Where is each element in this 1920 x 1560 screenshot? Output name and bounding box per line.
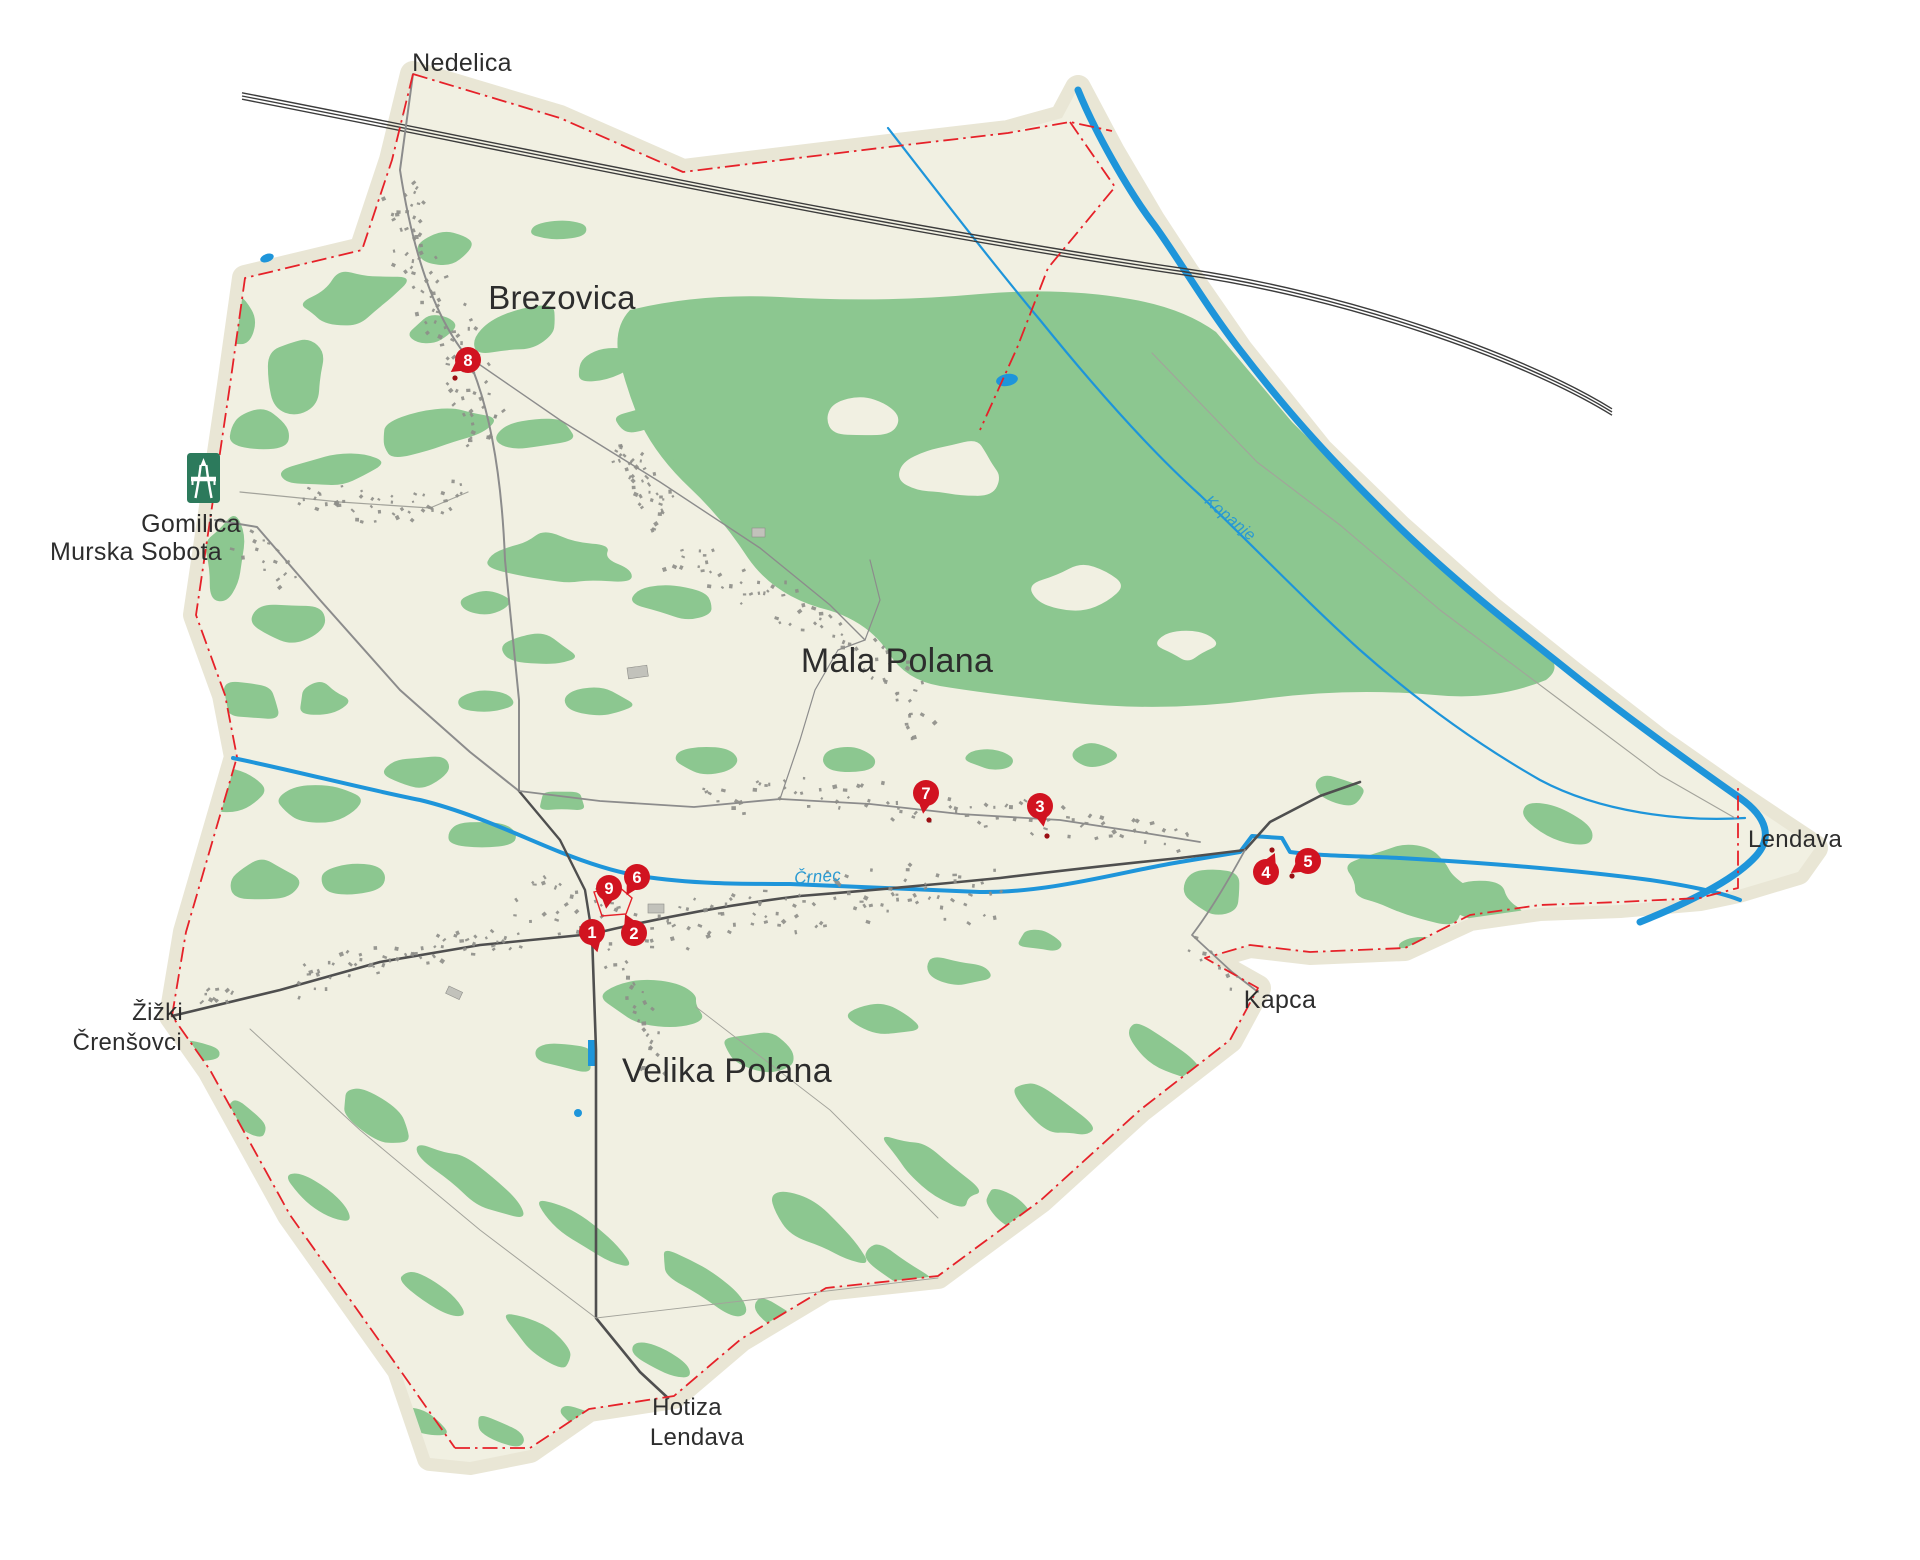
village-building: [645, 939, 649, 943]
village-building: [451, 479, 454, 483]
village-building: [703, 908, 708, 913]
village-building: [731, 806, 736, 810]
village-building: [662, 498, 664, 500]
map-page: NedelicaBrezovicaGomilicaMurska SobotaMa…: [0, 0, 1920, 1560]
village-building: [263, 569, 266, 571]
poi-dot: [1289, 873, 1294, 878]
village-building: [648, 491, 650, 494]
village-building: [720, 912, 724, 916]
village-building: [395, 213, 400, 217]
village-building: [386, 104, 388, 106]
village-building: [575, 890, 578, 894]
village-building: [391, 500, 394, 503]
village-building: [699, 549, 701, 552]
marker-number: 2: [629, 925, 638, 943]
village-building: [807, 805, 810, 808]
village-building: [784, 580, 787, 584]
label-brezovica: Brezovica: [488, 279, 636, 316]
village-building: [888, 887, 893, 891]
village-building: [342, 500, 345, 503]
village-building: [763, 890, 768, 893]
village-building: [451, 330, 456, 333]
village-building: [847, 891, 851, 895]
label-hotiza: Hotiza: [652, 1394, 722, 1421]
village-building: [632, 486, 636, 489]
village-building: [996, 816, 999, 819]
label-lendava-east: Lendava: [1748, 826, 1843, 853]
village-building: [1009, 805, 1013, 809]
village-building: [466, 389, 470, 393]
village-building: [802, 900, 806, 903]
village-building: [642, 991, 644, 993]
label-mala-polana: Mala Polana: [801, 642, 993, 680]
village-building: [886, 910, 888, 913]
village-building: [389, 958, 391, 962]
village-building: [777, 924, 781, 927]
village-building: [414, 952, 418, 955]
village-building: [650, 927, 654, 930]
village-building: [1144, 840, 1147, 844]
village-building: [374, 520, 377, 523]
village-building: [625, 996, 629, 1000]
label-crensovci: Črenšovci: [73, 1028, 182, 1056]
village-building: [303, 497, 306, 501]
village-building: [420, 301, 424, 304]
village-building: [1072, 818, 1075, 821]
village-building: [241, 555, 245, 559]
marker-number: 8: [463, 352, 472, 370]
map-canvas: NedelicaBrezovicaGomilicaMurska SobotaMa…: [0, 0, 1920, 1560]
village-building: [895, 894, 898, 896]
village-building: [325, 987, 328, 991]
village-building: [471, 953, 476, 956]
village-building: [609, 942, 612, 945]
village-building: [468, 327, 470, 331]
village-building: [700, 569, 704, 572]
village-building: [459, 939, 464, 943]
village-building: [944, 918, 947, 921]
village-building: [355, 518, 359, 522]
village-building: [378, 510, 381, 514]
village-building: [513, 914, 517, 916]
label-gomilica: Gomilica: [141, 510, 241, 538]
village-building: [1230, 987, 1233, 990]
village-building: [819, 788, 822, 792]
village-building: [622, 968, 625, 971]
village-building: [337, 504, 342, 508]
village-building: [757, 581, 760, 585]
village-building: [707, 584, 712, 588]
village-building: [441, 945, 444, 948]
village-building: [896, 801, 898, 805]
village-building: [1029, 818, 1033, 822]
forest-patch: [235, 217, 302, 257]
village-building: [460, 341, 463, 345]
village-building: [657, 1031, 660, 1034]
poi-dot: [452, 375, 457, 380]
marker-number: 5: [1303, 853, 1312, 871]
label-crnec: Črnec: [794, 865, 842, 887]
marker-number: 6: [632, 869, 641, 887]
marker-number: 3: [1035, 798, 1044, 816]
motorway-icon: [187, 453, 220, 503]
village-building: [743, 593, 746, 595]
village-building: [532, 883, 536, 885]
village-building: [431, 508, 433, 512]
village-building: [753, 788, 758, 792]
village-building: [496, 941, 498, 944]
village-building: [908, 714, 911, 718]
label-velika-polana: Velika Polana: [622, 1052, 832, 1090]
village-building: [729, 584, 733, 589]
village-building: [952, 874, 957, 877]
marker-number: 7: [921, 785, 930, 803]
village-building: [659, 495, 663, 498]
village-building: [823, 924, 827, 927]
village-building: [911, 737, 913, 740]
village-building: [668, 490, 672, 494]
village-building: [468, 439, 472, 442]
village-building: [896, 898, 899, 902]
village-building: [742, 812, 746, 815]
village-building: [716, 800, 719, 803]
village-building: [870, 868, 873, 872]
village-building: [993, 806, 995, 809]
village-building: [970, 806, 972, 809]
industrial-building: [648, 904, 664, 913]
village-building: [764, 784, 768, 787]
village-building: [906, 868, 910, 871]
village-building: [667, 922, 671, 925]
forest-patch: [448, 822, 515, 847]
village-building: [613, 963, 617, 966]
village-building: [359, 958, 362, 962]
village-building: [650, 946, 654, 949]
village-building: [641, 1021, 646, 1025]
village-building: [860, 901, 864, 903]
village-building: [1109, 834, 1113, 837]
village-building: [895, 698, 898, 701]
village-building: [768, 783, 770, 787]
village-building: [899, 810, 902, 814]
village-building: [1067, 835, 1070, 839]
label-lendava-south: Lendava: [650, 1424, 745, 1451]
village-building: [658, 915, 661, 919]
village-building: [325, 502, 328, 506]
village-building: [993, 869, 996, 872]
label-zizki: Žižki: [132, 999, 183, 1026]
village-building: [697, 565, 700, 568]
village-building: [529, 920, 532, 923]
village-building: [832, 634, 835, 637]
village-building: [965, 814, 970, 817]
village-building: [394, 947, 399, 951]
village-building: [954, 879, 957, 883]
village-building: [905, 723, 909, 726]
industrial-building: [627, 665, 648, 679]
village-building: [1202, 951, 1207, 956]
pond: [574, 1109, 582, 1117]
village-building: [204, 993, 207, 996]
village-building: [776, 912, 779, 916]
poi-dot: [1269, 847, 1274, 852]
marker-number: 4: [1261, 864, 1271, 882]
label-nedelica: Nedelica: [412, 49, 512, 77]
village-building: [419, 244, 423, 248]
village-building: [843, 788, 848, 791]
village-building: [374, 946, 378, 950]
village-building: [369, 963, 373, 967]
village-building: [819, 612, 824, 616]
village-building: [733, 923, 736, 927]
label-kapca: Kapca: [1244, 986, 1316, 1014]
village-building: [314, 988, 316, 991]
village-building: [801, 629, 805, 632]
village-building: [328, 961, 331, 965]
village-building: [803, 777, 805, 780]
village-building: [940, 905, 944, 909]
marker-number: 9: [604, 880, 613, 898]
village-building: [958, 875, 961, 878]
poi-dot: [926, 817, 931, 822]
village-building: [626, 976, 630, 980]
village-building: [725, 903, 727, 907]
village-building: [426, 961, 430, 964]
village-building: [405, 210, 409, 213]
village-building: [1164, 843, 1166, 846]
village-building: [703, 554, 707, 557]
industrial-building: [752, 528, 765, 537]
marker-number: 1: [587, 924, 596, 942]
label-murska-sobota: Murska Sobota: [50, 538, 222, 566]
village-building: [263, 539, 265, 541]
poi-dot: [1044, 833, 1049, 838]
village-building: [972, 884, 975, 888]
forest-patch: [268, 340, 323, 415]
